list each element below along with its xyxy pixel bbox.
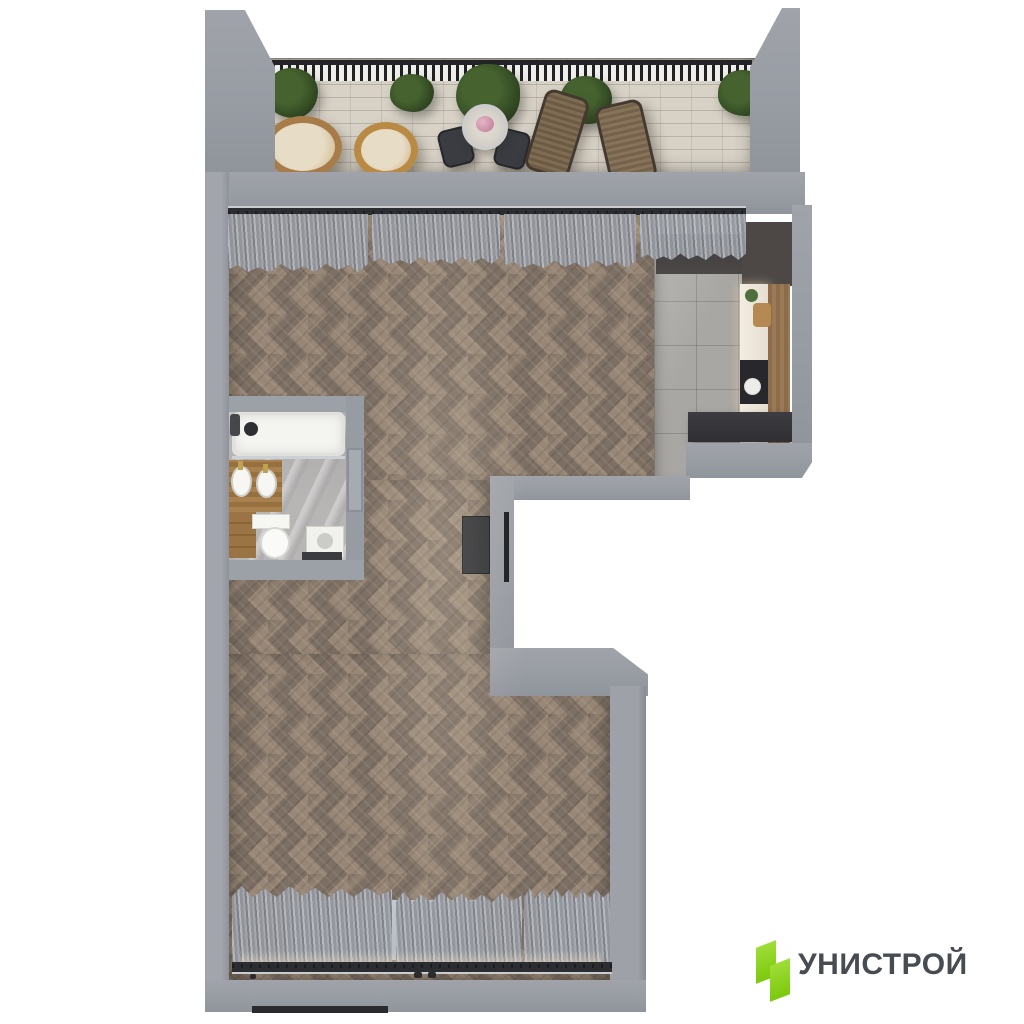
kitchen-corner-cabinet (742, 222, 797, 286)
pan (744, 378, 761, 395)
wall-left (205, 172, 229, 1012)
curtain (524, 888, 610, 972)
curtain-foot (250, 974, 256, 979)
curtain-foot (414, 972, 422, 978)
washing-machine-door (317, 533, 333, 549)
kitchen-floor (654, 242, 744, 478)
wall-hall-top (490, 476, 690, 500)
faucet-icon (238, 461, 243, 470)
toilet-bowl (260, 527, 290, 559)
curtain (372, 214, 500, 264)
bath-fixture (230, 414, 240, 436)
hanging-chair (264, 116, 342, 178)
faucet-icon (263, 464, 268, 473)
wall-right-lower (610, 686, 646, 986)
entrance-door (462, 516, 490, 574)
curtain (232, 886, 392, 972)
kitchen-island-bench (688, 412, 796, 442)
floorplan-render: УНИСТРОЙ (0, 0, 1024, 1024)
brand-logo: УНИСТРОЙ (748, 928, 1018, 1004)
shower-head-icon (244, 422, 258, 436)
bathroom-wall-bottom (218, 560, 364, 580)
entrance-door-frame (504, 512, 509, 582)
glass-screen (232, 456, 345, 459)
bath-mat (302, 552, 342, 560)
terrace-plant-icon (390, 74, 434, 112)
table-flowers (476, 116, 494, 132)
curtain (504, 214, 636, 268)
curtain-foot (428, 972, 436, 978)
cutting-board (753, 303, 771, 327)
wall-kitchen-bottom (686, 443, 812, 478)
terrace-wall-right (750, 8, 800, 173)
exterior-sill (252, 1006, 388, 1013)
curtain (228, 214, 368, 272)
sink (256, 469, 277, 498)
brand-name: УНИСТРОЙ (798, 948, 968, 982)
bathroom (218, 396, 364, 580)
terrace-wall-left (205, 10, 275, 173)
curtain-hooks (232, 964, 612, 968)
bathroom-wall-top (218, 396, 364, 412)
counter-plant-icon (745, 289, 758, 302)
sink (231, 466, 252, 497)
hanging-chair (354, 122, 418, 178)
wall-hall-left (490, 476, 514, 666)
bathroom-door (347, 448, 363, 512)
wall-right-upper (792, 205, 812, 457)
curtain-rail-bottom (232, 962, 612, 974)
logo-mark-icon (770, 958, 790, 1002)
curtain (396, 892, 522, 972)
curtain-rail-top (228, 206, 746, 215)
curtain (640, 214, 746, 260)
